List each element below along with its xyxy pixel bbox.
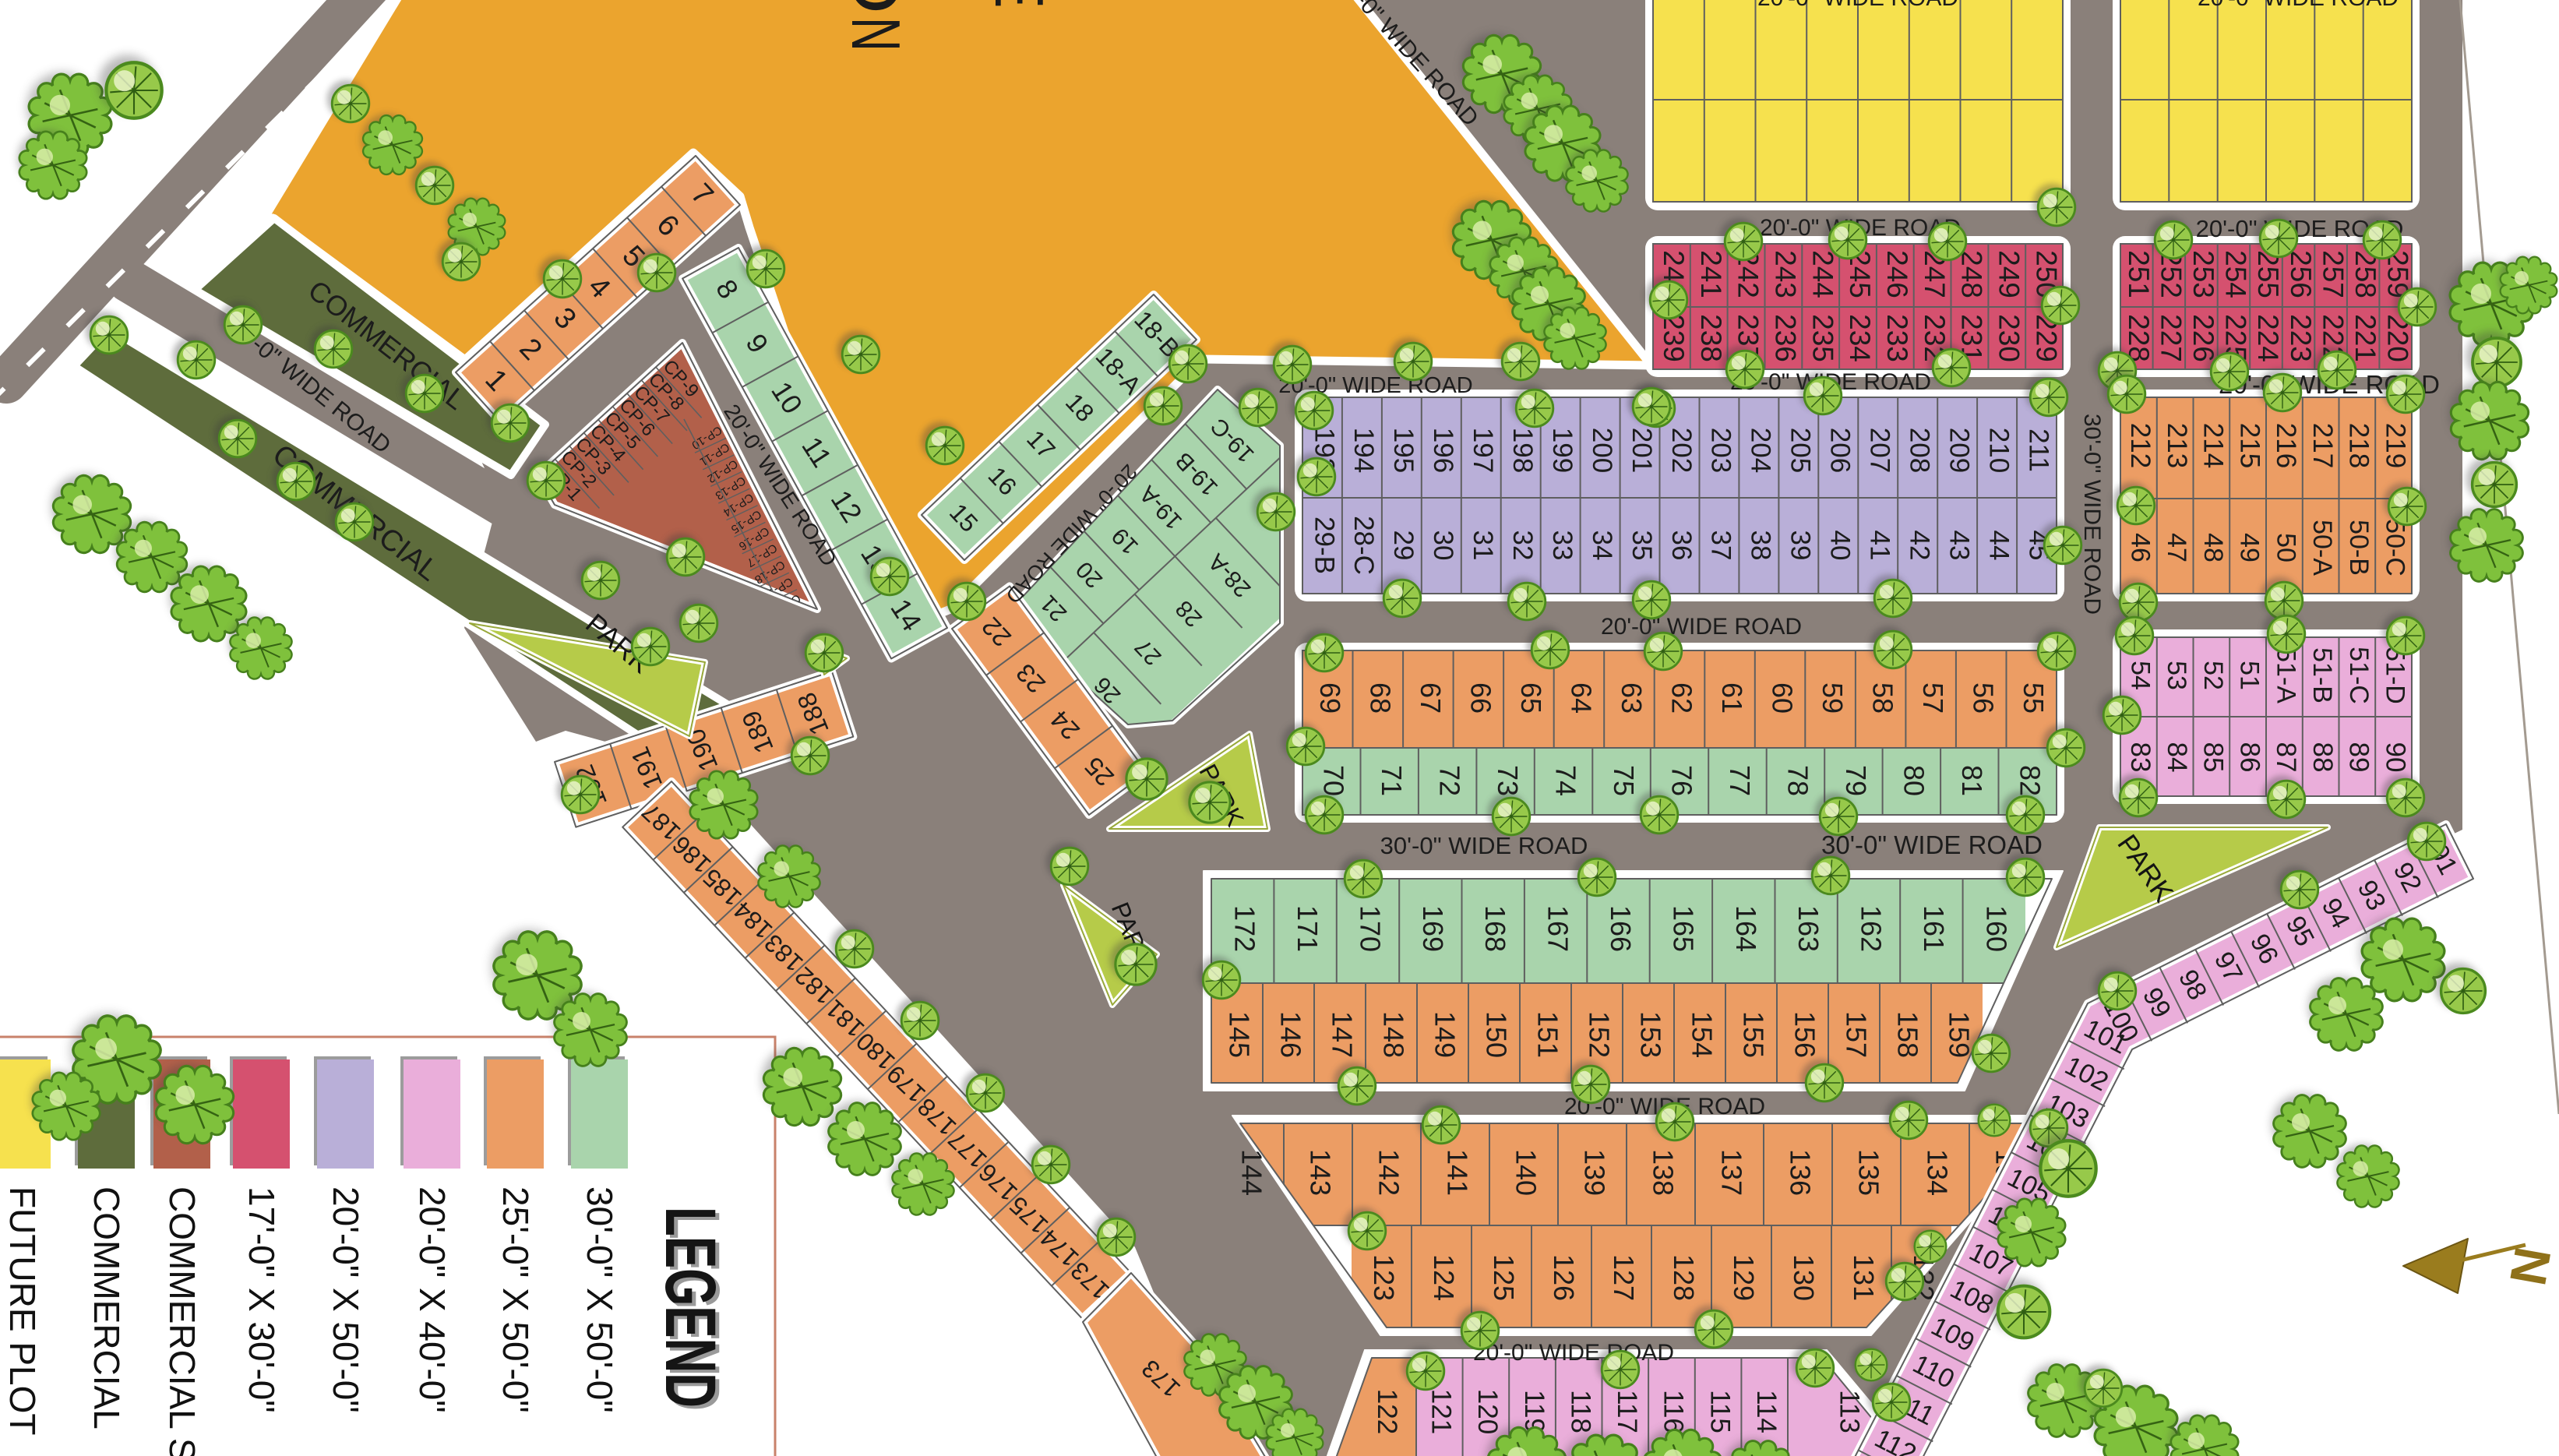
svg-text:227: 227 — [2155, 314, 2187, 362]
svg-text:20'-0" WIDE ROAD: 20'-0" WIDE ROAD — [1757, 0, 1958, 11]
svg-text:81: 81 — [1956, 765, 1988, 796]
svg-text:20'-0" WIDE ROAD: 20'-0" WIDE ROAD — [1473, 1340, 1674, 1366]
svg-text:153: 153 — [1634, 1011, 1666, 1058]
svg-text:78: 78 — [1782, 765, 1814, 796]
svg-text:55: 55 — [2018, 682, 2050, 714]
svg-text:150: 150 — [1480, 1011, 1512, 1058]
svg-text:138: 138 — [1647, 1149, 1679, 1196]
svg-text:O: O — [837, 0, 915, 14]
svg-text:115: 115 — [1704, 1390, 1735, 1433]
svg-text:30'-0" WIDE ROAD: 30'-0" WIDE ROAD — [2079, 414, 2105, 615]
svg-text:128: 128 — [1668, 1254, 1700, 1301]
svg-text:49: 49 — [2235, 533, 2265, 562]
svg-text:71: 71 — [1376, 765, 1408, 796]
svg-text:67: 67 — [1415, 682, 1447, 714]
svg-text:121: 121 — [1426, 1389, 1457, 1434]
svg-text:35: 35 — [1627, 531, 1657, 561]
svg-text:140: 140 — [1510, 1149, 1542, 1196]
svg-text:236: 236 — [1770, 314, 1802, 362]
svg-text:144: 144 — [1235, 1149, 1267, 1196]
svg-text:20'-0" WIDE ROAD: 20'-0" WIDE ROAD — [1601, 614, 1802, 640]
svg-text:156: 156 — [1789, 1011, 1821, 1058]
svg-text:211: 211 — [2023, 428, 2053, 472]
svg-text:46: 46 — [2125, 533, 2155, 562]
svg-text:196: 196 — [1428, 428, 1458, 473]
svg-text:118: 118 — [1565, 1390, 1595, 1433]
svg-text:61: 61 — [1716, 682, 1748, 714]
svg-text:141: 141 — [1441, 1149, 1473, 1196]
svg-text:139: 139 — [1578, 1149, 1610, 1196]
svg-text:151: 151 — [1532, 1011, 1563, 1058]
svg-text:146: 146 — [1274, 1011, 1306, 1058]
svg-text:194: 194 — [1348, 428, 1379, 473]
svg-text:80: 80 — [1898, 765, 1930, 796]
svg-text:44: 44 — [1983, 531, 2014, 561]
svg-text:40: 40 — [1825, 531, 1856, 561]
svg-text:137: 137 — [1715, 1149, 1747, 1196]
svg-text:43: 43 — [1944, 531, 1974, 561]
svg-text:197: 197 — [1468, 428, 1498, 473]
svg-text:254: 254 — [2220, 250, 2252, 298]
svg-text:205: 205 — [1785, 428, 1816, 473]
svg-text:74: 74 — [1550, 765, 1582, 796]
svg-text:221: 221 — [2349, 314, 2381, 362]
svg-text:157: 157 — [1840, 1011, 1872, 1058]
svg-text:248: 248 — [1956, 250, 1988, 298]
svg-text:155: 155 — [1737, 1011, 1769, 1058]
svg-text:LEGEND: LEGEND — [650, 1207, 730, 1408]
svg-text:36: 36 — [1666, 531, 1697, 561]
svg-text:39: 39 — [1785, 531, 1816, 561]
svg-text:130: 130 — [1788, 1254, 1820, 1301]
svg-text:251: 251 — [2123, 250, 2155, 298]
svg-text:238: 238 — [1695, 314, 1727, 362]
svg-text:77: 77 — [1724, 765, 1756, 796]
svg-text:235: 235 — [1806, 314, 1838, 362]
svg-text:200: 200 — [1587, 428, 1617, 473]
svg-text:223: 223 — [2285, 314, 2317, 362]
svg-text:241: 241 — [1695, 250, 1727, 298]
svg-text:47: 47 — [2162, 533, 2191, 562]
svg-text:230: 230 — [1993, 314, 2025, 362]
svg-text:214: 214 — [2198, 423, 2229, 468]
svg-text:29-B: 29-B — [1309, 516, 1339, 574]
svg-text:135: 135 — [1852, 1149, 1884, 1196]
svg-text:224: 224 — [2252, 314, 2284, 362]
svg-text:131: 131 — [1848, 1254, 1880, 1301]
svg-text:210: 210 — [1983, 428, 2014, 473]
svg-text:202: 202 — [1666, 428, 1697, 473]
svg-text:126: 126 — [1548, 1254, 1580, 1301]
svg-text:64: 64 — [1565, 682, 1597, 714]
svg-text:163: 163 — [1792, 905, 1824, 952]
svg-text:63: 63 — [1616, 682, 1648, 714]
svg-text:59: 59 — [1817, 682, 1849, 714]
svg-text:136: 136 — [1784, 1149, 1816, 1196]
svg-text:50-A: 50-A — [2307, 520, 2337, 576]
svg-text:34: 34 — [1587, 531, 1617, 561]
svg-text:30'-0" WIDE ROAD: 30'-0" WIDE ROAD — [1821, 830, 2043, 859]
svg-text:257: 257 — [2317, 250, 2349, 298]
svg-text:168: 168 — [1479, 905, 1511, 952]
svg-text:73: 73 — [1492, 765, 1524, 796]
svg-text:216: 216 — [2271, 423, 2301, 468]
svg-text:213: 213 — [2162, 423, 2192, 468]
svg-text:145: 145 — [1223, 1011, 1255, 1058]
svg-text:89: 89 — [2344, 742, 2374, 773]
svg-text:203: 203 — [1706, 428, 1736, 473]
svg-text:76: 76 — [1665, 765, 1697, 796]
svg-text:58: 58 — [1867, 682, 1899, 714]
svg-text:207: 207 — [1864, 428, 1895, 473]
svg-text:54: 54 — [2125, 661, 2155, 690]
svg-text:117: 117 — [1612, 1390, 1642, 1433]
svg-text:53: 53 — [2162, 661, 2191, 690]
svg-text:217: 217 — [2307, 423, 2338, 468]
svg-text:243: 243 — [1770, 250, 1802, 298]
svg-text:68: 68 — [1364, 682, 1396, 714]
svg-text:42: 42 — [1904, 531, 1934, 561]
svg-text:212: 212 — [2125, 423, 2155, 468]
svg-text:79: 79 — [1840, 765, 1872, 796]
svg-text:142: 142 — [1373, 1149, 1405, 1196]
svg-text:169: 169 — [1417, 905, 1449, 952]
svg-text:233: 233 — [1881, 314, 1913, 362]
svg-text:51: 51 — [2235, 661, 2265, 690]
svg-text:166: 166 — [1605, 905, 1637, 952]
svg-text:199: 199 — [1547, 428, 1577, 473]
svg-text:52: 52 — [2198, 661, 2228, 690]
svg-text:239: 239 — [1658, 314, 1690, 362]
svg-text:249: 249 — [1993, 250, 2025, 298]
svg-text:28-C: 28-C — [1348, 516, 1379, 575]
svg-text:32: 32 — [1507, 531, 1538, 561]
svg-text:48: 48 — [2198, 533, 2228, 562]
svg-text:208: 208 — [1904, 428, 1934, 473]
svg-text:84: 84 — [2162, 742, 2192, 773]
svg-text:154: 154 — [1686, 1011, 1718, 1058]
svg-text:COMMERCIAL: COMMERCIAL — [86, 1186, 127, 1430]
svg-text:204: 204 — [1746, 428, 1776, 473]
svg-text:162: 162 — [1855, 905, 1887, 952]
svg-text:244: 244 — [1806, 250, 1838, 298]
svg-text:127: 127 — [1608, 1254, 1640, 1301]
svg-text:198: 198 — [1507, 428, 1538, 473]
svg-text:147: 147 — [1326, 1011, 1358, 1058]
svg-text:85: 85 — [2198, 742, 2229, 773]
svg-text:83: 83 — [2125, 742, 2155, 773]
svg-text:149: 149 — [1429, 1011, 1461, 1058]
svg-text:31: 31 — [1468, 531, 1498, 561]
svg-text:75: 75 — [1608, 765, 1640, 796]
svg-text:50-C: 50-C — [2381, 519, 2410, 576]
svg-text:65: 65 — [1515, 682, 1547, 714]
svg-text:FUTURE PLOT: FUTURE PLOT — [2, 1186, 43, 1435]
svg-text:152: 152 — [1583, 1011, 1615, 1058]
svg-text:218: 218 — [2344, 423, 2374, 468]
svg-text:30'-0" WIDE ROAD: 30'-0" WIDE ROAD — [1380, 832, 1588, 859]
svg-text:66: 66 — [1465, 682, 1496, 714]
svg-text:50-B: 50-B — [2344, 520, 2374, 576]
svg-text:114: 114 — [1751, 1390, 1782, 1433]
svg-text:172: 172 — [1229, 905, 1261, 952]
svg-text:161: 161 — [1918, 905, 1950, 952]
svg-text:170: 170 — [1354, 905, 1386, 952]
svg-text:41: 41 — [1864, 531, 1895, 561]
svg-text:125: 125 — [1488, 1254, 1520, 1301]
svg-text:N: N — [837, 17, 915, 51]
svg-text:88: 88 — [2307, 742, 2338, 773]
svg-text:148: 148 — [1377, 1011, 1409, 1058]
svg-text:143: 143 — [1304, 1149, 1336, 1196]
svg-text:20'-0" WIDE ROAD: 20'-0" WIDE ROAD — [2198, 0, 2399, 11]
svg-text:50: 50 — [2271, 533, 2300, 562]
svg-text:72: 72 — [1434, 765, 1466, 796]
svg-text:29: 29 — [1388, 531, 1419, 561]
svg-text:E: E — [981, 0, 1058, 8]
svg-text:215: 215 — [2234, 423, 2265, 468]
svg-text:86: 86 — [2234, 742, 2265, 773]
svg-text:122: 122 — [1372, 1389, 1402, 1434]
svg-text:62: 62 — [1665, 682, 1697, 714]
svg-text:120: 120 — [1472, 1389, 1503, 1434]
svg-text:165: 165 — [1667, 905, 1699, 952]
svg-text:51-B: 51-B — [2307, 647, 2337, 703]
svg-text:116: 116 — [1658, 1390, 1689, 1433]
svg-text:30: 30 — [1428, 531, 1458, 561]
svg-text:253: 253 — [2187, 250, 2219, 298]
svg-text:158: 158 — [1891, 1011, 1923, 1058]
svg-text:20'-0" X 40'-0": 20'-0" X 40'-0" — [412, 1186, 453, 1413]
svg-text:90: 90 — [2380, 742, 2410, 773]
svg-text:124: 124 — [1428, 1254, 1460, 1301]
svg-text:51-A: 51-A — [2271, 647, 2300, 703]
svg-text:25'-0" X 50'-0": 25'-0" X 50'-0" — [495, 1186, 536, 1413]
svg-text:201: 201 — [1627, 428, 1657, 473]
svg-text:56: 56 — [1968, 682, 2000, 714]
svg-text:246: 246 — [1881, 250, 1913, 298]
svg-text:164: 164 — [1730, 905, 1762, 952]
svg-text:209: 209 — [1944, 428, 1974, 473]
svg-text:57: 57 — [1917, 682, 1949, 714]
svg-text:167: 167 — [1542, 905, 1574, 952]
svg-text:87: 87 — [2271, 742, 2301, 773]
svg-text:256: 256 — [2285, 250, 2317, 298]
svg-text:33: 33 — [1547, 531, 1577, 561]
svg-text:69: 69 — [1314, 682, 1346, 714]
svg-text:134: 134 — [1921, 1149, 1953, 1196]
svg-text:206: 206 — [1825, 428, 1856, 473]
svg-text:123: 123 — [1368, 1254, 1400, 1301]
svg-text:195: 195 — [1388, 428, 1419, 473]
svg-text:20'-0" X 50'-0": 20'-0" X 50'-0" — [326, 1186, 366, 1413]
svg-text:38: 38 — [1746, 531, 1776, 561]
svg-text:113: 113 — [1834, 1390, 1864, 1433]
svg-text:160: 160 — [1980, 905, 2012, 952]
svg-text:30'-0" X 50'-0": 30'-0" X 50'-0" — [580, 1186, 620, 1413]
svg-text:129: 129 — [1728, 1254, 1760, 1301]
svg-text:17'-0" X 30'-0": 17'-0" X 30'-0" — [241, 1186, 282, 1413]
svg-text:COMMERCIAL SHOPS: COMMERCIAL SHOPS — [162, 1186, 203, 1456]
svg-text:60: 60 — [1767, 682, 1799, 714]
svg-text:234: 234 — [1844, 314, 1876, 362]
svg-text:219: 219 — [2380, 423, 2410, 468]
svg-text:37: 37 — [1706, 531, 1736, 561]
svg-text:171: 171 — [1292, 905, 1324, 952]
svg-text:51-C: 51-C — [2344, 647, 2374, 704]
